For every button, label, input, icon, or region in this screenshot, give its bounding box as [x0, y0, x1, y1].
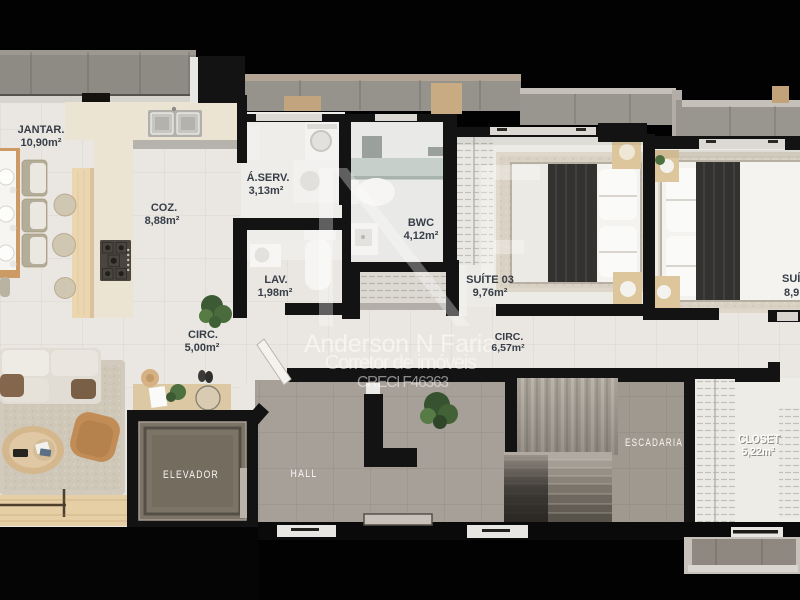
- svg-text:5,00m²: 5,00m²: [185, 342, 220, 354]
- svg-text:SUÍTE 03: SUÍTE 03: [466, 273, 514, 286]
- svg-text:3,13m²: 3,13m²: [249, 185, 284, 197]
- svg-text:5,22m²: 5,22m²: [742, 446, 775, 458]
- svg-text:JANTAR.: JANTAR.: [18, 124, 65, 136]
- svg-text:ESCADARIA: ESCADARIA: [625, 437, 683, 449]
- svg-text:HALL: HALL: [291, 468, 318, 480]
- svg-text:LAV.: LAV.: [264, 274, 287, 286]
- svg-text:CLOSET: CLOSET: [738, 434, 780, 446]
- svg-text:8,9: 8,9: [784, 287, 799, 299]
- svg-text:SUÍTE: SUÍTE: [782, 272, 800, 285]
- svg-text:ELEVADOR: ELEVADOR: [163, 469, 219, 481]
- svg-text:9,76m²: 9,76m²: [473, 287, 508, 299]
- svg-text:COZ.: COZ.: [151, 202, 177, 214]
- svg-text:Á.SERV.: Á.SERV.: [247, 171, 290, 184]
- svg-text:BWC: BWC: [408, 217, 434, 229]
- svg-text:Corretor de imóveis: Corretor de imóveis: [325, 352, 477, 374]
- svg-text:8,88m²: 8,88m²: [145, 215, 180, 227]
- svg-text:CRECI F46363: CRECI F46363: [357, 374, 449, 391]
- svg-text:4,12m²: 4,12m²: [404, 230, 439, 242]
- svg-text:CIRC.: CIRC.: [188, 329, 218, 341]
- svg-text:1,98m²: 1,98m²: [258, 287, 293, 299]
- svg-text:6,57m²: 6,57m²: [491, 342, 525, 354]
- svg-text:10,90m²: 10,90m²: [21, 137, 62, 149]
